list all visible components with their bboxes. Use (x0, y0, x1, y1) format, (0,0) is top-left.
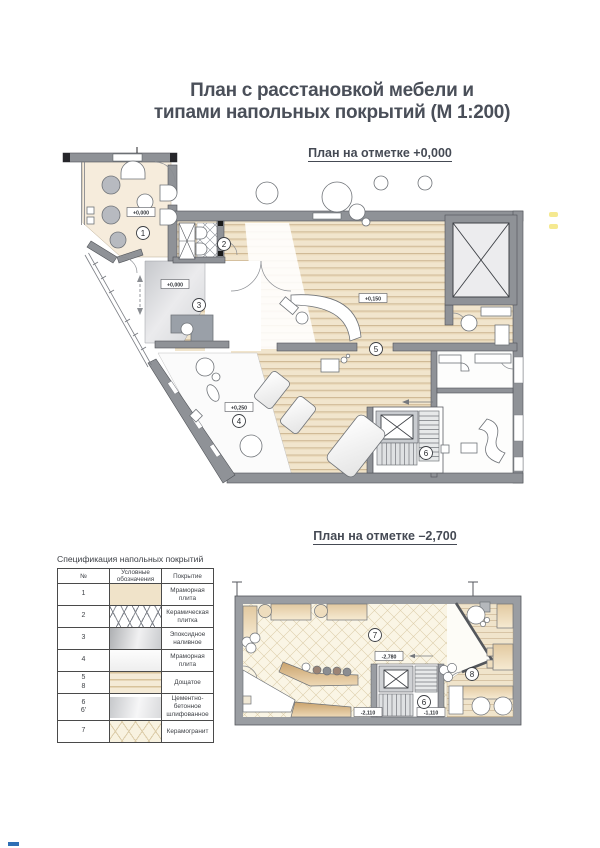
table-row: 6 6' Цементно-бетонное шлифованное (58, 694, 214, 721)
highlight-mark (549, 224, 558, 229)
room-number-6-lower: 6 (422, 698, 427, 707)
elevation-left: -2,110 (361, 710, 376, 716)
room-number-1: 1 (141, 229, 146, 238)
elevator-shaft-icon (445, 215, 517, 305)
spec-table-block: Спецификация напольных покрытий № Условн… (57, 554, 215, 743)
swatch-porcelain (110, 721, 161, 742)
lower-floor-plan: -2,780 -2,110 -1,110 7 8 6 (225, 578, 535, 730)
col-header-symbol: Условные обозначения (110, 569, 162, 584)
elevation-right: -1,110 (424, 710, 439, 716)
col-header-covering: Покрытие (162, 569, 214, 584)
spec-table: № Условные обозначения Покрытие 1 Мрамор… (57, 568, 214, 743)
swatch-ceramic-tile (110, 606, 161, 627)
room-number-2: 2 (222, 240, 227, 249)
sheet-title: План с расстановкой мебели и типами напо… (107, 80, 557, 123)
column-ticks (232, 582, 478, 596)
table-row: 2 Керамическая плитка (58, 606, 214, 628)
elevation-room4: +0,250 (231, 405, 247, 411)
drawing-sheet: План с расстановкой мебели и типами напо… (0, 0, 600, 848)
swatch-plank (110, 672, 161, 693)
lower-plan-caption: План на отметке –2,700 (260, 529, 510, 543)
room-number-8: 8 (470, 670, 475, 679)
sheet-title-line2: типами напольных покрытий (М 1:200) (107, 102, 557, 124)
room-number-3: 3 (197, 301, 202, 310)
highlight-mark (549, 212, 558, 217)
room-number-4: 4 (237, 417, 242, 426)
upper-floor-plan: +0,000 +0,000 +0,150 +0,250 1 2 3 4 5 6 (55, 145, 545, 490)
spec-table-title: Спецификация напольных покрытий (57, 554, 215, 564)
table-row: 1 Мраморная плита (58, 584, 214, 606)
col-header-num: № (58, 569, 110, 584)
table-row: 3 Эпоксидное наливное (58, 628, 214, 650)
swatch-marble-beige (110, 584, 161, 605)
swatch-marble-white (110, 650, 161, 671)
room-number-5: 5 (374, 345, 379, 354)
spec-header-row: № Условные обозначения Покрытие (58, 569, 214, 584)
table-row: 5 8 Дощатое (58, 672, 214, 694)
elevation-room5: +0,150 (365, 296, 381, 302)
table-row: 7 Керамогранит (58, 721, 214, 743)
swatch-cement (110, 697, 161, 718)
sheet-title-line1: План с расстановкой мебели и (107, 80, 557, 102)
elevation-room3: +0,000 (167, 282, 183, 288)
elevation-room1: +0,000 (133, 210, 149, 216)
table-row: 4 Мраморная плита (58, 650, 214, 672)
entrance-arrow (137, 275, 143, 315)
swatch-epoxy (110, 628, 161, 649)
room-number-6: 6 (424, 449, 429, 458)
elevation-main: -2,780 (382, 654, 397, 660)
corner-mark (8, 842, 19, 846)
room-number-7: 7 (373, 631, 378, 640)
